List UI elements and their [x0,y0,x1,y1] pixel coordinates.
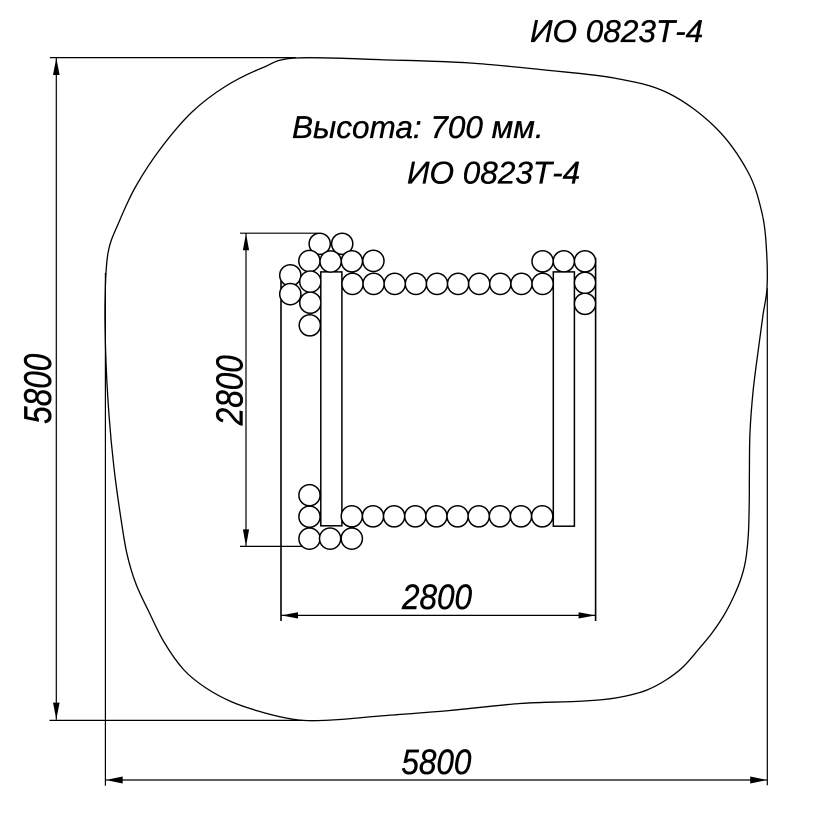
svg-text:ИО 0823Т-4: ИО 0823Т-4 [407,155,580,191]
svg-text:Высота: 700 мм.: Высота: 700 мм. [292,109,544,145]
svg-text:ИО 0823Т-4: ИО 0823Т-4 [530,13,703,49]
svg-text:5800: 5800 [401,742,472,782]
svg-text:2800: 2800 [401,577,473,617]
svg-text:5800: 5800 [15,353,59,424]
svg-text:2800: 2800 [208,355,251,427]
